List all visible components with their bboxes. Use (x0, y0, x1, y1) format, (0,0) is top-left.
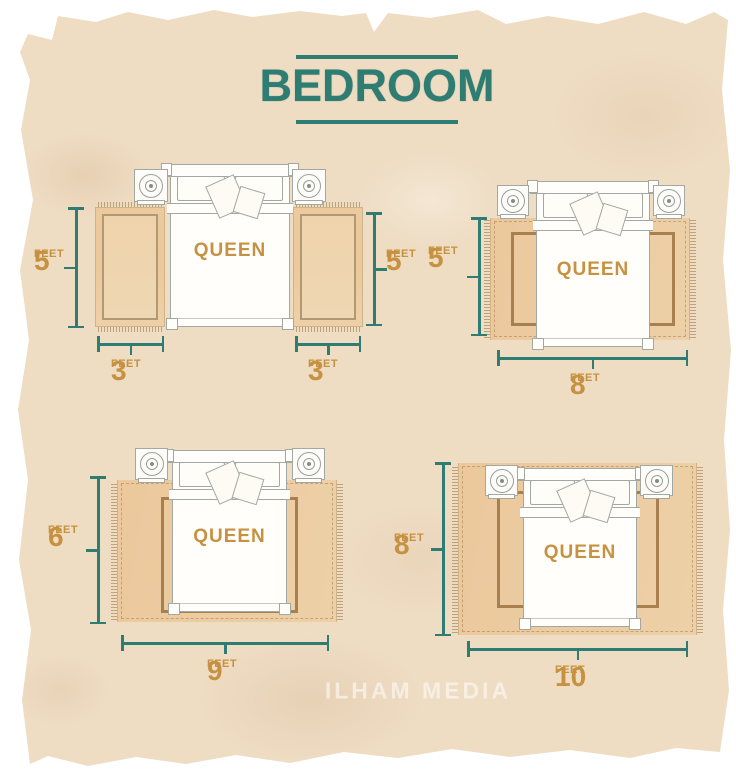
bed: QUEEN (536, 183, 650, 347)
title-rule-bottom (296, 120, 458, 124)
lamp-icon (297, 452, 321, 476)
nightstand-left (497, 185, 529, 216)
bed: QUEEN (170, 166, 290, 327)
bed-footline (527, 618, 633, 619)
rug-fringe (296, 327, 360, 332)
nightstand-right (292, 448, 325, 480)
lamp-icon (490, 469, 514, 493)
bed: QUEEN (523, 470, 637, 627)
dimension-line-left (97, 477, 100, 623)
title-rule-top (296, 55, 458, 59)
watermark: ILHAM MEDIA (325, 678, 511, 705)
bed-size-label: QUEEN (193, 526, 266, 548)
bed-footline (176, 603, 283, 604)
nightstand-left (485, 465, 518, 496)
lamp-icon (297, 174, 321, 198)
bed-post-bottom-right (279, 603, 291, 615)
nightstand-right (292, 169, 326, 202)
dimension-line-left (442, 463, 445, 635)
nightstand-right (640, 465, 673, 496)
bed-post-bottom-left (168, 603, 180, 615)
lamp-icon (501, 189, 525, 213)
rug-fringe (452, 465, 458, 633)
bed-size-label: QUEEN (194, 240, 267, 262)
dimension-line-bottom (498, 357, 687, 360)
dimension-line-bottom (468, 648, 687, 651)
page-title: BEDROOM (260, 60, 495, 112)
lamp-icon (139, 174, 163, 198)
bed-footline (174, 318, 286, 319)
runner-rug-right (293, 207, 363, 327)
diagram-queen-runners: QUEEN 5 FEET 5 FEET 3 FEET 3 FEET (38, 160, 458, 405)
dimension-line-bottom (122, 642, 328, 645)
diagram-queen-6x9-rug: QUEEN 6 FEET 9 FEET (40, 440, 380, 705)
paper-sheet: BEDROOM QUEEN (0, 0, 736, 782)
bed-post-bottom-right (282, 318, 294, 330)
rug-fringe (690, 220, 696, 338)
bed-post-bottom-right (629, 618, 641, 630)
rug-fringe (98, 327, 162, 332)
lamp-icon (657, 189, 681, 213)
rug-fringe (111, 482, 117, 620)
bed-post-bottom-left (166, 318, 178, 330)
rug-fringe (337, 482, 343, 620)
dimension-line-bottom-left (98, 343, 163, 346)
rug-fringe (484, 220, 490, 338)
bed: QUEEN (172, 452, 287, 612)
lamp-icon (140, 452, 164, 476)
runner-rug-left (95, 207, 165, 327)
nightstand-right (653, 185, 685, 216)
bed-post-bottom-left (519, 618, 531, 630)
rug-fringe (697, 465, 703, 633)
dimension-line-bottom-right (296, 343, 360, 346)
dimension-line-left (478, 218, 481, 335)
dimension-line-right (373, 213, 376, 325)
bed-size-label: QUEEN (544, 542, 617, 564)
bed-footline (540, 338, 646, 339)
diagram-queen-5x8-rug: QUEEN 5 FEET 8 FEET (400, 175, 700, 410)
nightstand-left (135, 448, 168, 480)
diagram-queen-8x10-rug: QUEEN 8 FEET 10 FEET (400, 440, 720, 710)
lamp-icon (645, 469, 669, 493)
bed-post-bottom-left (532, 338, 544, 350)
bed-post-bottom-right (642, 338, 654, 350)
bed-size-label: QUEEN (557, 259, 630, 281)
dimension-line-left (75, 208, 78, 327)
nightstand-left (134, 169, 168, 202)
